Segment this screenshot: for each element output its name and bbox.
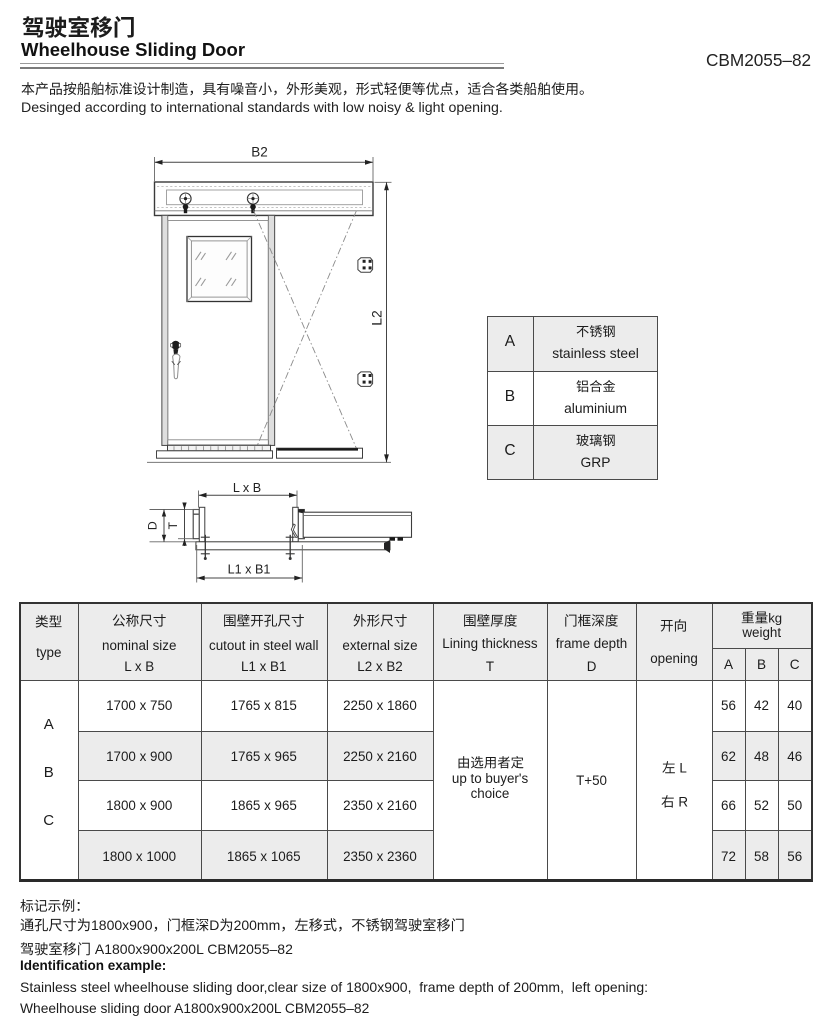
svg-text:kg: kg bbox=[768, 611, 782, 626]
svg-text:1800x900: 1800x900 bbox=[91, 918, 153, 934]
svg-text:T: T bbox=[166, 521, 180, 529]
svg-text:D: D bbox=[209, 918, 219, 934]
svg-text:L: L bbox=[675, 761, 686, 776]
svg-text:D: D bbox=[146, 521, 160, 530]
svg-text:L2: L2 bbox=[369, 310, 385, 326]
svg-text:L1 x B1: L1 x B1 bbox=[228, 563, 271, 577]
svg-text:R: R bbox=[674, 794, 688, 809]
svg-text:200mm: 200mm bbox=[234, 918, 281, 934]
svg-text:B2: B2 bbox=[251, 145, 268, 160]
svg-text:A1800x900x200L CBM2055–82: A1800x900x200L CBM2055–82 bbox=[91, 941, 293, 957]
svg-text:L x B: L x B bbox=[233, 481, 261, 495]
